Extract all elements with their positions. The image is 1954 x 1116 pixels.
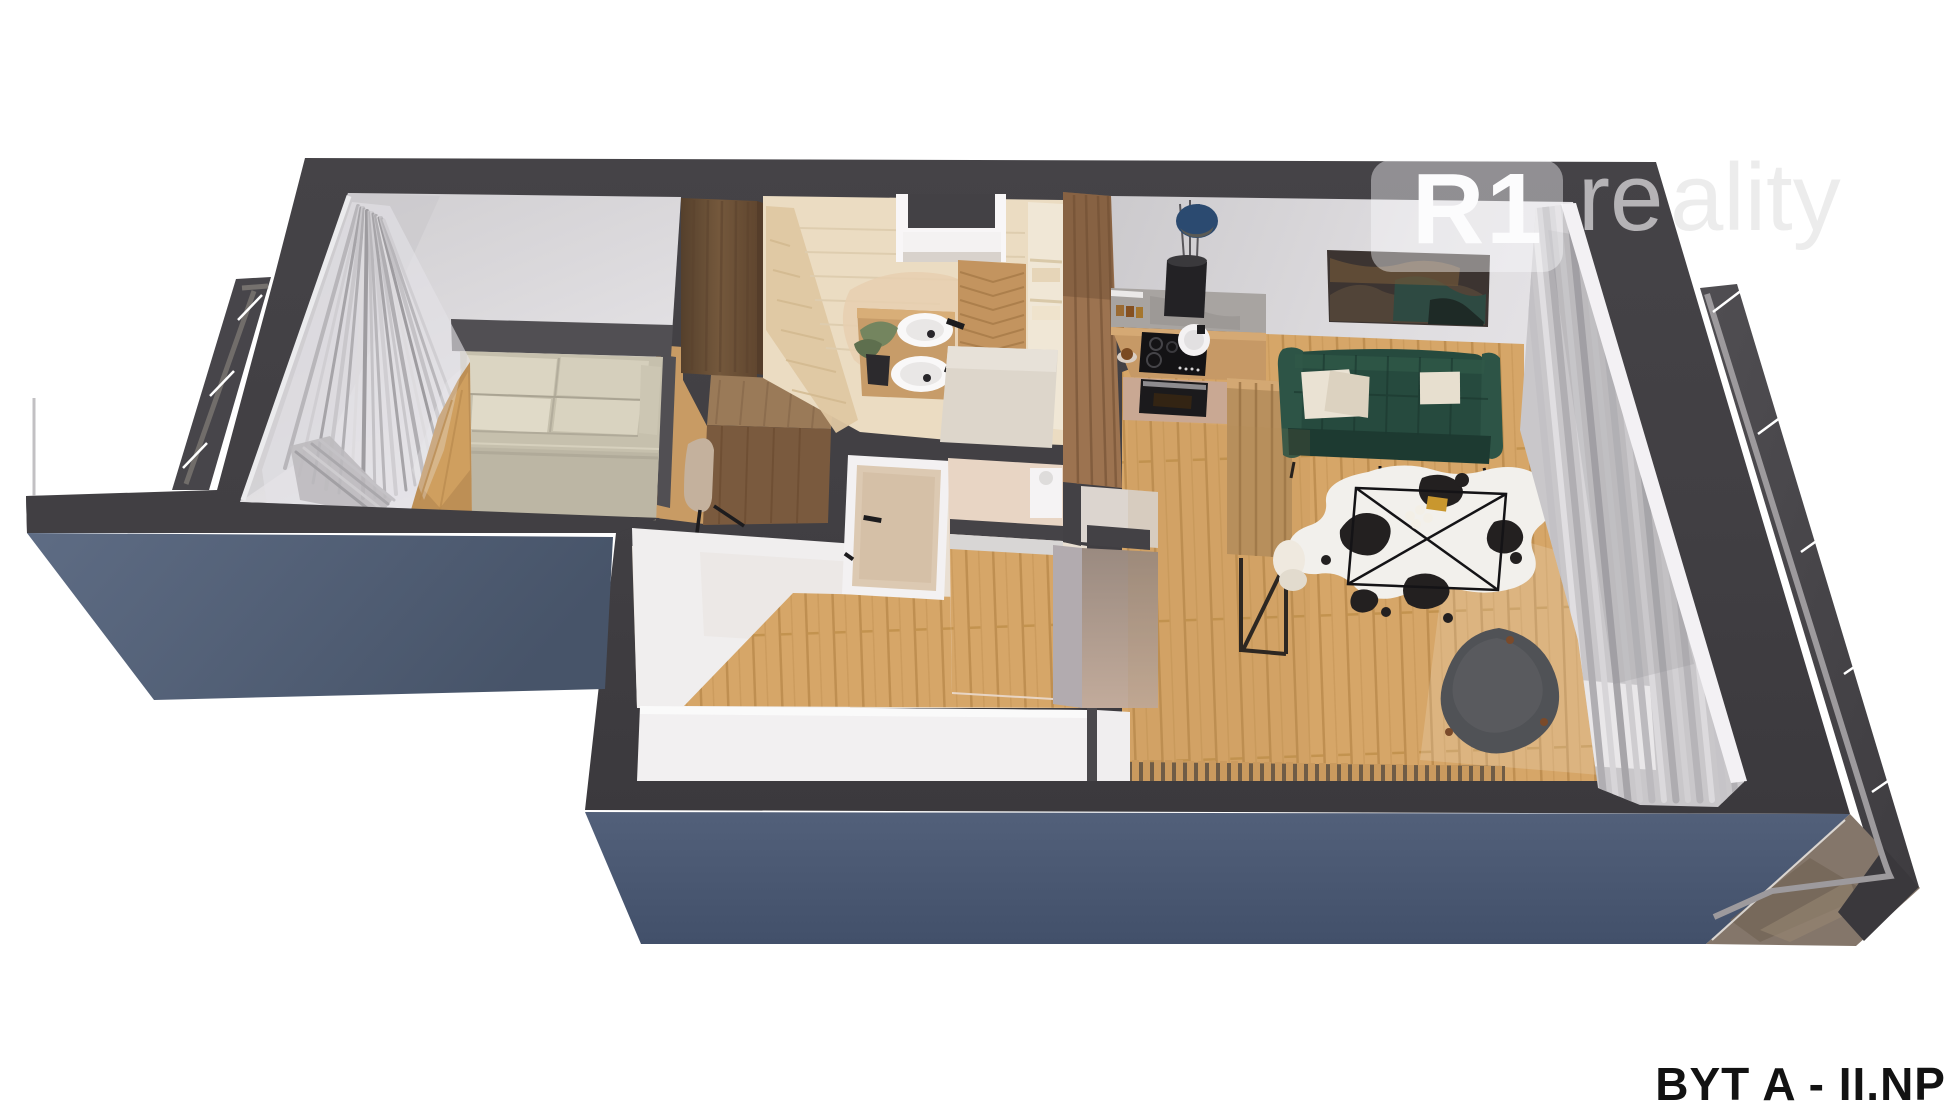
svg-text:BYT A - II.NP: BYT A - II.NP <box>1655 1058 1946 1110</box>
svg-text:ality: ality <box>1670 144 1841 251</box>
svg-text:re: re <box>1578 144 1663 251</box>
svg-text:R1: R1 <box>1412 153 1544 265</box>
